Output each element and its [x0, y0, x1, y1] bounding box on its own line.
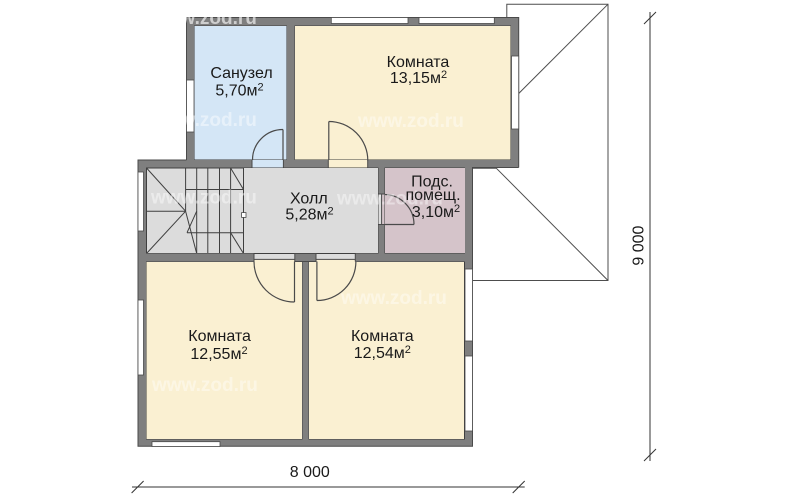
- svg-text:3,10м2: 3,10м2: [412, 203, 460, 221]
- svg-text:помещ.: помещ.: [405, 187, 460, 204]
- svg-text:Комната: Комната: [351, 328, 414, 345]
- svg-text:www.zod.ru: www.zod.ru: [357, 111, 464, 132]
- svg-text:www.zod.ru: www.zod.ru: [150, 110, 257, 131]
- svg-text:www.zod.ru: www.zod.ru: [150, 8, 257, 29]
- svg-text:9 000: 9 000: [631, 225, 648, 265]
- svg-text:5,70м2: 5,70м2: [215, 82, 263, 100]
- svg-text:12,54м2: 12,54м2: [354, 344, 411, 362]
- svg-text:www.zod.ru: www.zod.ru: [151, 375, 258, 396]
- svg-text:8 000: 8 000: [290, 464, 330, 481]
- svg-text:13,15м2: 13,15м2: [390, 69, 447, 87]
- svg-text:12,55м2: 12,55м2: [190, 345, 247, 363]
- svg-text:www.zod.ru: www.zod.ru: [340, 288, 447, 309]
- svg-text:www.zod.ru: www.zod.ru: [150, 188, 257, 209]
- svg-text:Холл: Холл: [290, 191, 328, 208]
- svg-text:Комната: Комната: [188, 328, 251, 345]
- svg-text:5,28м2: 5,28м2: [285, 206, 333, 224]
- svg-text:Санузел: Санузел: [210, 65, 272, 82]
